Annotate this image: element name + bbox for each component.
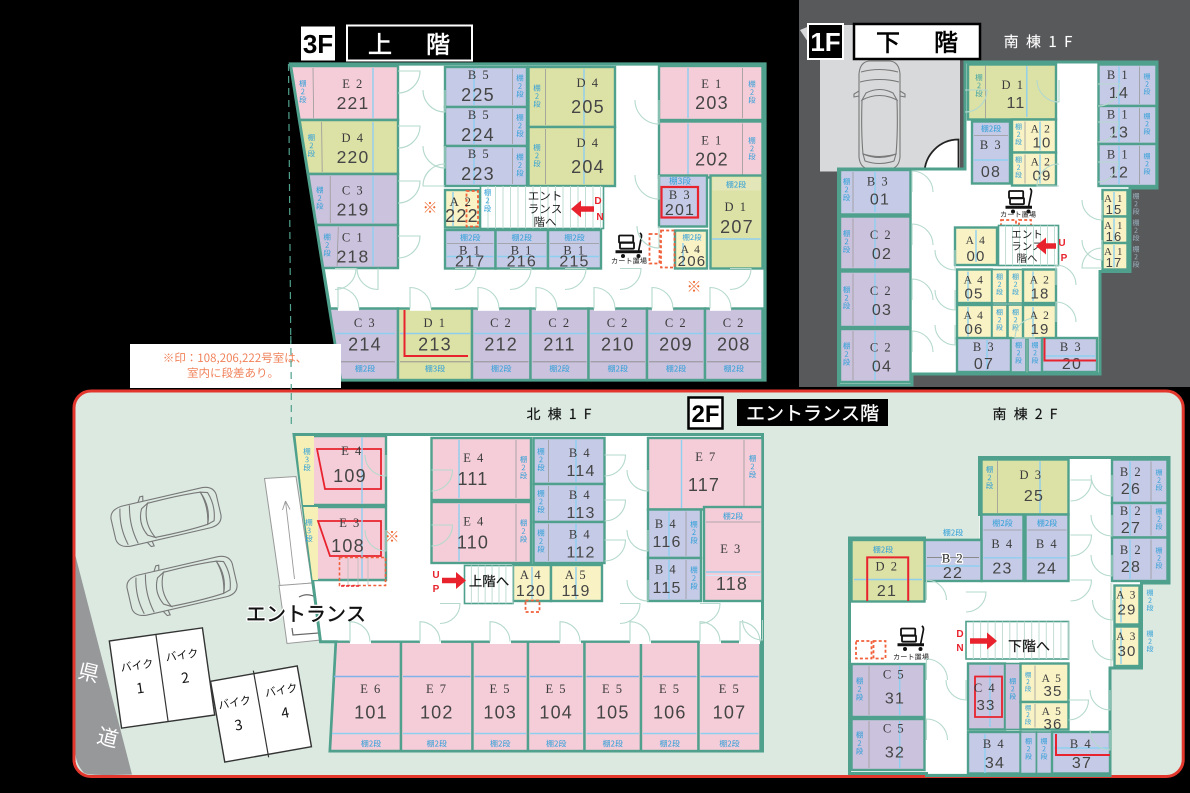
svg-text:B 5: B 5 [468,147,490,161]
svg-text:225: 225 [461,85,495,105]
svg-text:37: 37 [1072,755,1092,772]
svg-text:C 4: C 4 [974,681,996,695]
svg-text:210: 210 [601,335,635,355]
svg-text:118: 118 [716,574,748,594]
svg-text:04: 04 [872,359,892,376]
svg-text:E 3: E 3 [720,542,742,556]
svg-text:B 5: B 5 [468,68,490,82]
svg-text:B 3: B 3 [669,188,691,202]
svg-text:B 1: B 1 [1107,68,1129,82]
svg-text:213: 213 [418,335,452,355]
svg-text:07: 07 [974,356,994,373]
svg-text:C 2: C 2 [665,316,687,330]
svg-text:D 1: D 1 [1002,78,1025,92]
svg-text:12: 12 [1109,165,1129,182]
svg-text:D 4: D 4 [577,76,600,90]
svg-text:C 2: C 2 [607,316,629,330]
svg-text:D 4: D 4 [577,136,600,150]
svg-text:N: N [956,643,963,654]
svg-text:B 1: B 1 [1107,108,1129,122]
svg-text:00: 00 [966,248,985,265]
svg-text:205: 205 [571,97,605,117]
svg-text:31: 31 [885,691,905,708]
svg-text:116: 116 [652,534,681,551]
svg-text:C 3: C 3 [354,316,376,330]
svg-text:A 4: A 4 [966,235,987,247]
svg-text:26: 26 [1121,481,1141,498]
svg-text:30: 30 [1117,643,1136,660]
svg-text:109: 109 [333,466,367,486]
svg-text:C 3: C 3 [342,184,364,198]
svg-text:15: 15 [1106,202,1123,217]
svg-text:104: 104 [539,703,573,723]
svg-text:223: 223 [461,164,495,184]
svg-text:113: 113 [566,505,595,522]
svg-text:B 4: B 4 [569,446,591,460]
svg-text:E 7: E 7 [426,682,448,696]
svg-text:222: 222 [445,206,479,226]
svg-text:221: 221 [337,93,370,113]
svg-text:05: 05 [964,286,983,303]
svg-text:206: 206 [678,253,707,270]
svg-text:E 5: E 5 [602,682,624,696]
svg-text:20: 20 [1062,356,1082,373]
svg-text:C 2: C 2 [548,316,570,330]
svg-text:110: 110 [457,533,489,553]
svg-text:B 3: B 3 [1060,340,1082,354]
svg-text:E 1: E 1 [701,134,723,148]
svg-text:03: 03 [872,302,892,319]
svg-text:06: 06 [964,321,983,338]
svg-text:101: 101 [354,703,388,723]
svg-text:B 4: B 4 [1070,737,1092,751]
svg-text:C 2: C 2 [723,316,745,330]
svg-text:P: P [433,584,440,595]
svg-text:U: U [432,570,439,581]
svg-text:B 5: B 5 [468,108,490,122]
svg-text:33: 33 [976,697,995,714]
svg-text:B 2: B 2 [1120,504,1142,518]
svg-text:35: 35 [1043,683,1062,700]
svg-text:21: 21 [877,583,897,600]
svg-text:A 3: A 3 [1116,631,1137,643]
svg-text:E 5: E 5 [545,682,567,696]
svg-text:E 4: E 4 [341,444,363,458]
svg-text:18: 18 [1030,286,1049,303]
svg-text:E 4: E 4 [463,515,485,529]
svg-text:28: 28 [1121,559,1141,576]
svg-text:B 4: B 4 [569,528,591,542]
svg-text:B 4: B 4 [655,563,677,577]
svg-text:02: 02 [872,246,892,263]
svg-text:107: 107 [713,703,747,723]
svg-text:16: 16 [1106,229,1123,244]
svg-text:B 2: B 2 [1120,465,1142,479]
svg-text:B 4: B 4 [983,737,1005,751]
svg-text:36: 36 [1043,716,1062,733]
svg-text:13: 13 [1109,125,1129,142]
svg-text:2F: 2F [691,401,719,428]
svg-text:10: 10 [1032,135,1051,152]
svg-text:117: 117 [688,475,720,495]
svg-text:203: 203 [695,93,729,113]
svg-text:B 4: B 4 [569,488,591,502]
svg-text:3F: 3F [303,29,333,59]
svg-text:111: 111 [458,469,489,489]
svg-text:108: 108 [331,536,365,556]
svg-text:E 5: E 5 [489,682,511,696]
svg-text:E 5: E 5 [719,682,741,696]
svg-text:29: 29 [1117,602,1136,619]
svg-text:202: 202 [695,150,729,170]
svg-text:D: D [956,629,963,640]
svg-text:D 1: D 1 [424,316,447,330]
svg-text:114: 114 [566,463,595,480]
svg-text:B 4: B 4 [991,537,1013,551]
svg-text:E 2: E 2 [342,77,364,91]
svg-text:212: 212 [484,335,518,355]
svg-text:E 3: E 3 [339,516,361,530]
svg-text:08: 08 [981,164,1001,181]
svg-text:22: 22 [943,565,963,582]
svg-text:A 4: A 4 [520,568,542,582]
svg-text:A 3: A 3 [1116,590,1137,602]
svg-text:224: 224 [461,125,495,145]
svg-text:B 3: B 3 [867,175,889,189]
svg-text:32: 32 [885,745,905,762]
svg-text:B 2: B 2 [942,552,964,566]
svg-text:211: 211 [543,335,575,355]
svg-text:24: 24 [1037,561,1057,578]
svg-text:D: D [594,196,601,207]
svg-text:D 2: D 2 [876,560,899,574]
svg-text:E 7: E 7 [695,450,717,464]
svg-text:E 6: E 6 [360,682,382,696]
svg-text:N: N [596,212,603,223]
svg-text:105: 105 [596,703,630,723]
svg-text:220: 220 [337,147,370,167]
svg-text:214: 214 [348,335,382,355]
svg-text:C 2: C 2 [870,228,892,242]
svg-text:D 1: D 1 [725,200,748,214]
svg-text:27: 27 [1121,520,1141,537]
svg-text:207: 207 [720,217,754,237]
svg-text:B 3: B 3 [980,138,1002,152]
svg-text:B 4: B 4 [1036,537,1058,551]
svg-text:23: 23 [992,561,1012,578]
svg-text:C 2: C 2 [490,316,512,330]
svg-text:14: 14 [1109,85,1129,102]
svg-text:19: 19 [1030,321,1049,338]
svg-text:B 3: B 3 [973,340,995,354]
svg-text:120: 120 [516,583,546,600]
svg-text:D 3: D 3 [1020,468,1043,482]
svg-text:P: P [1061,253,1068,264]
svg-text:U: U [1058,238,1065,249]
svg-text:115: 115 [652,580,681,597]
svg-text:C 2: C 2 [870,284,892,298]
svg-text:C 2: C 2 [870,341,892,355]
svg-text:C 5: C 5 [883,722,905,736]
svg-text:103: 103 [483,703,517,723]
svg-text:209: 209 [659,335,693,355]
svg-text:11: 11 [1006,95,1025,112]
svg-text:E 4: E 4 [463,451,485,465]
svg-text:201: 201 [665,202,695,219]
svg-text:34: 34 [985,755,1005,772]
svg-text:112: 112 [566,545,595,562]
svg-text:E 1: E 1 [701,77,723,91]
svg-text:C 1: C 1 [342,231,364,245]
svg-text:106: 106 [653,703,687,723]
svg-text:09: 09 [1032,168,1051,185]
svg-text:25: 25 [1024,488,1044,505]
svg-text:B 1: B 1 [1107,148,1129,162]
svg-text:208: 208 [717,335,751,355]
svg-text:B 4: B 4 [655,517,677,531]
svg-text:A 5: A 5 [565,568,587,582]
svg-text:E 5: E 5 [659,682,681,696]
svg-text:17: 17 [1106,255,1123,270]
svg-text:B 2: B 2 [1120,543,1142,557]
svg-text:204: 204 [571,157,605,177]
svg-text:C 5: C 5 [883,668,905,682]
svg-text:D 4: D 4 [342,131,365,145]
svg-text:119: 119 [561,583,590,600]
svg-text:218: 218 [337,247,370,267]
svg-text:219: 219 [337,200,370,220]
svg-text:1F: 1F [810,27,840,57]
svg-text:102: 102 [420,703,454,723]
svg-text:01: 01 [870,192,890,209]
